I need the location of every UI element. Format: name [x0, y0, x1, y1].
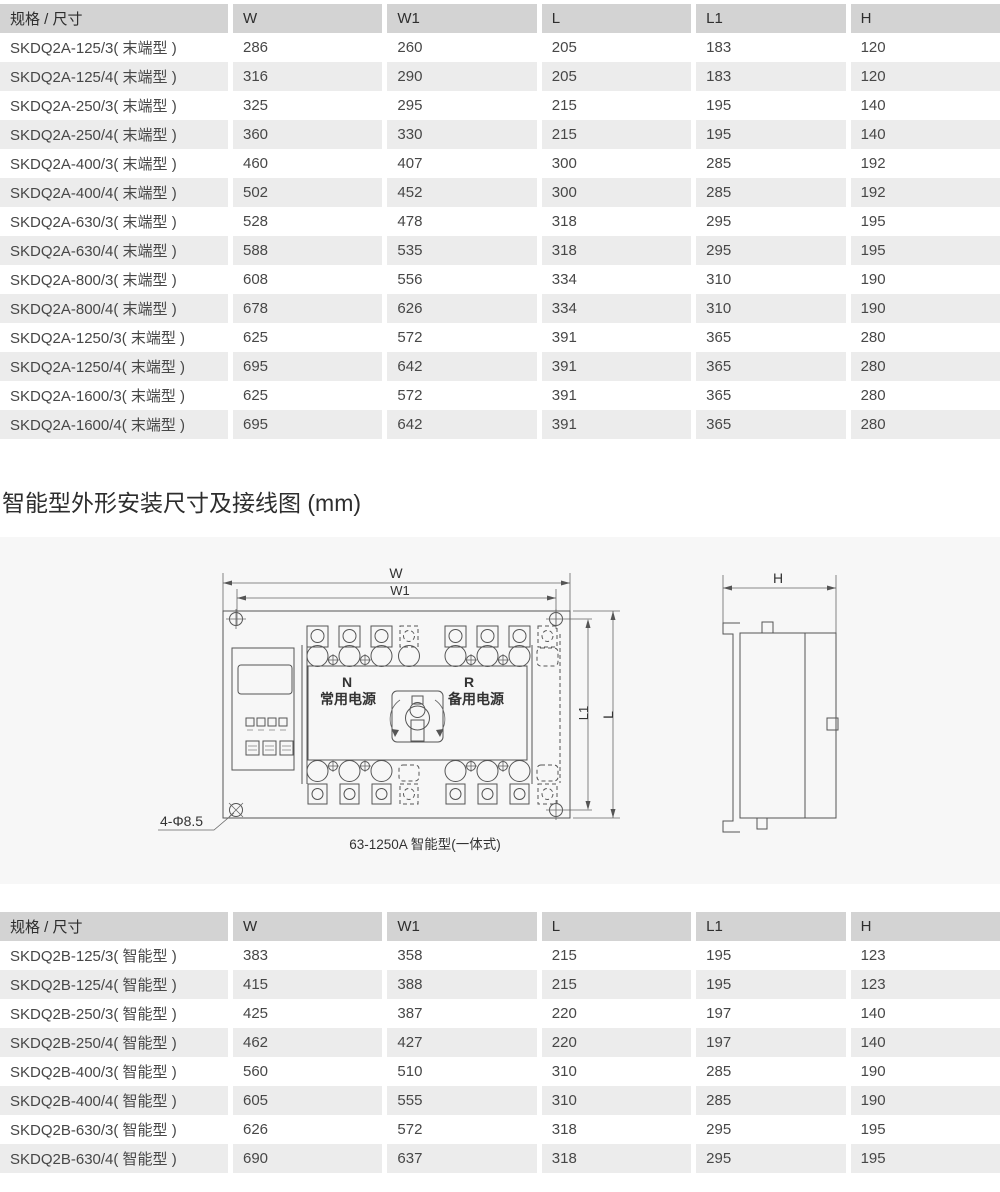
value-cell: 183	[691, 62, 845, 91]
value-cell: 192	[846, 178, 1000, 207]
value-cell: 608	[228, 265, 382, 294]
dimension-drawing: W W1	[0, 537, 1000, 884]
value-cell: 285	[691, 1086, 845, 1115]
table-row: SKDQ2A-250/3( 末端型 )325295215195140	[0, 91, 1000, 120]
label-r: R	[464, 674, 474, 690]
value-cell: 197	[691, 1028, 845, 1057]
table-row: SKDQ2A-1600/4( 末端型 )695642391365280	[0, 410, 1000, 439]
value-cell: 120	[846, 33, 1000, 62]
value-cell: 391	[537, 352, 691, 381]
value-cell: 407	[382, 149, 536, 178]
spec-cell: SKDQ2A-250/3( 末端型 )	[0, 91, 228, 120]
spec-cell: SKDQ2B-125/3( 智能型 )	[0, 941, 228, 970]
dim-label-l: L	[600, 711, 616, 719]
table-row: SKDQ2A-400/3( 末端型 )460407300285192	[0, 149, 1000, 178]
spec-cell: SKDQ2A-400/3( 末端型 )	[0, 149, 228, 178]
dim-label-l1: L1	[576, 706, 591, 720]
spec-cell: SKDQ2A-250/4( 末端型 )	[0, 120, 228, 149]
value-cell: 295	[691, 1144, 845, 1173]
value-cell: 427	[382, 1028, 536, 1057]
value-cell: 310	[537, 1086, 691, 1115]
value-cell: 140	[846, 999, 1000, 1028]
value-cell: 295	[691, 1115, 845, 1144]
table-header-row: 规格 / 尺寸WW1LL1H	[0, 4, 1000, 33]
table-row: SKDQ2A-400/4( 末端型 )502452300285192	[0, 178, 1000, 207]
rotary-switch	[390, 691, 445, 742]
value-cell: 190	[846, 294, 1000, 323]
controller-display	[238, 665, 292, 694]
column-header-dim: L1	[691, 912, 845, 941]
value-cell: 318	[537, 236, 691, 265]
value-cell: 572	[382, 381, 536, 410]
value-cell: 391	[537, 410, 691, 439]
value-cell: 285	[691, 178, 845, 207]
value-cell: 215	[537, 941, 691, 970]
value-cell: 605	[228, 1086, 382, 1115]
value-cell: 195	[691, 91, 845, 120]
value-cell: 358	[382, 941, 536, 970]
column-header-dim: W1	[382, 4, 536, 33]
spec-cell: SKDQ2A-800/3( 末端型 )	[0, 265, 228, 294]
spec-cell: SKDQ2A-630/4( 末端型 )	[0, 236, 228, 265]
value-cell: 310	[537, 1057, 691, 1086]
dim-label-w: W	[389, 565, 403, 581]
value-cell: 260	[382, 33, 536, 62]
dimension-l1: L1	[576, 619, 591, 810]
datasheet-page: 规格 / 尺寸WW1LL1H SKDQ2A-125/3( 末端型 )286260…	[0, 4, 1000, 1173]
value-cell: 387	[382, 999, 536, 1028]
value-cell: 625	[228, 381, 382, 410]
label-n: N	[342, 674, 352, 690]
spec-cell: SKDQ2B-250/4( 智能型 )	[0, 1028, 228, 1057]
spec-cell: SKDQ2A-1250/3( 末端型 )	[0, 323, 228, 352]
value-cell: 120	[846, 62, 1000, 91]
table-skdq2a: 规格 / 尺寸WW1LL1H SKDQ2A-125/3( 末端型 )286260…	[0, 4, 1000, 439]
value-cell: 295	[691, 207, 845, 236]
side-bracket	[723, 623, 740, 832]
value-cell: 140	[846, 1028, 1000, 1057]
spec-cell: SKDQ2B-125/4( 智能型 )	[0, 970, 228, 999]
value-cell: 280	[846, 323, 1000, 352]
front-view: W W1	[158, 565, 620, 852]
value-cell: 478	[382, 207, 536, 236]
spec-cell: SKDQ2A-800/4( 末端型 )	[0, 294, 228, 323]
value-cell: 140	[846, 120, 1000, 149]
mounting-hole-bottom-left	[229, 803, 243, 817]
value-cell: 310	[691, 265, 845, 294]
spec-cell: SKDQ2A-125/4( 末端型 )	[0, 62, 228, 91]
mounting-hole-bottom-right	[546, 800, 592, 820]
side-top-tab	[762, 622, 773, 633]
value-cell: 556	[382, 265, 536, 294]
value-cell: 391	[537, 323, 691, 352]
spec-cell: SKDQ2B-630/4( 智能型 )	[0, 1144, 228, 1173]
spec-cell: SKDQ2A-630/3( 末端型 )	[0, 207, 228, 236]
value-cell: 123	[846, 941, 1000, 970]
value-cell: 502	[228, 178, 382, 207]
value-cell: 625	[228, 323, 382, 352]
dimension-w1: W1	[237, 583, 556, 625]
value-cell: 462	[228, 1028, 382, 1057]
value-cell: 365	[691, 410, 845, 439]
value-cell: 460	[228, 149, 382, 178]
table-row: SKDQ2A-1600/3( 末端型 )625572391365280	[0, 381, 1000, 410]
table-row: SKDQ2B-400/3( 智能型 )560510310285190	[0, 1057, 1000, 1086]
value-cell: 140	[846, 91, 1000, 120]
value-cell: 535	[382, 236, 536, 265]
value-cell: 334	[537, 294, 691, 323]
value-cell: 318	[537, 207, 691, 236]
value-cell: 215	[537, 91, 691, 120]
value-cell: 290	[382, 62, 536, 91]
spec-cell: SKDQ2A-125/3( 末端型 )	[0, 33, 228, 62]
value-cell: 365	[691, 381, 845, 410]
value-cell: 642	[382, 352, 536, 381]
value-cell: 195	[846, 1144, 1000, 1173]
value-cell: 295	[382, 91, 536, 120]
value-cell: 637	[382, 1144, 536, 1173]
column-header-dim: L	[537, 4, 691, 33]
hole-callout-label: 4-Φ8.5	[160, 813, 203, 829]
label-n-source: 常用电源	[320, 691, 376, 707]
value-cell: 285	[691, 149, 845, 178]
table-row: SKDQ2A-630/4( 末端型 )588535318295195	[0, 236, 1000, 265]
value-cell: 642	[382, 410, 536, 439]
side-view: H	[723, 570, 838, 832]
value-cell: 190	[846, 1086, 1000, 1115]
column-header-dim: H	[846, 4, 1000, 33]
table-row: SKDQ2A-250/4( 末端型 )360330215195140	[0, 120, 1000, 149]
value-cell: 183	[691, 33, 845, 62]
table-row: SKDQ2B-250/3( 智能型 )425387220197140	[0, 999, 1000, 1028]
value-cell: 195	[846, 236, 1000, 265]
value-cell: 695	[228, 410, 382, 439]
table-row: SKDQ2A-800/3( 末端型 )608556334310190	[0, 265, 1000, 294]
spec-cell: SKDQ2A-1600/3( 末端型 )	[0, 381, 228, 410]
value-cell: 678	[228, 294, 382, 323]
column-header-spec: 规格 / 尺寸	[0, 4, 228, 33]
value-cell: 286	[228, 33, 382, 62]
table-row: SKDQ2B-250/4( 智能型 )462427220197140	[0, 1028, 1000, 1057]
value-cell: 572	[382, 323, 536, 352]
column-header-dim: W	[228, 4, 382, 33]
value-cell: 192	[846, 149, 1000, 178]
table-row: SKDQ2B-400/4( 智能型 )605555310285190	[0, 1086, 1000, 1115]
section-heading: 智能型外形安装尺寸及接线图 (mm)	[2, 489, 1000, 517]
table-row: SKDQ2A-800/4( 末端型 )678626334310190	[0, 294, 1000, 323]
table-row: SKDQ2A-125/3( 末端型 )286260205183120	[0, 33, 1000, 62]
controller-panel	[232, 648, 294, 770]
value-cell: 190	[846, 265, 1000, 294]
value-cell: 197	[691, 999, 845, 1028]
value-cell: 310	[691, 294, 845, 323]
table-row: SKDQ2B-630/4( 智能型 )690637318295195	[0, 1144, 1000, 1173]
value-cell: 383	[228, 941, 382, 970]
value-cell: 123	[846, 970, 1000, 999]
spec-cell: SKDQ2A-400/4( 末端型 )	[0, 178, 228, 207]
side-body	[740, 633, 836, 818]
value-cell: 690	[228, 1144, 382, 1173]
value-cell: 425	[228, 999, 382, 1028]
spec-cell: SKDQ2B-630/3( 智能型 )	[0, 1115, 228, 1144]
table-row: SKDQ2B-630/3( 智能型 )626572318295195	[0, 1115, 1000, 1144]
table-skdq2b: 规格 / 尺寸WW1LL1H SKDQ2B-125/3( 智能型 )383358…	[0, 912, 1000, 1173]
value-cell: 195	[691, 120, 845, 149]
value-cell: 560	[228, 1057, 382, 1086]
value-cell: 626	[228, 1115, 382, 1144]
column-header-spec: 规格 / 尺寸	[0, 912, 228, 941]
value-cell: 285	[691, 1057, 845, 1086]
dim-label-h: H	[773, 570, 783, 586]
value-cell: 195	[691, 970, 845, 999]
table-row: SKDQ2A-125/4( 末端型 )316290205183120	[0, 62, 1000, 91]
value-cell: 300	[537, 149, 691, 178]
table-header-row: 规格 / 尺寸WW1LL1H	[0, 912, 1000, 941]
value-cell: 195	[691, 941, 845, 970]
table-row: SKDQ2A-1250/3( 末端型 )625572391365280	[0, 323, 1000, 352]
dimension-h: H	[723, 570, 836, 634]
spec-cell: SKDQ2A-1600/4( 末端型 )	[0, 410, 228, 439]
table-row: SKDQ2A-630/3( 末端型 )528478318295195	[0, 207, 1000, 236]
value-cell: 695	[228, 352, 382, 381]
mounting-hole-top-left	[226, 609, 246, 629]
value-cell: 316	[228, 62, 382, 91]
value-cell: 318	[537, 1144, 691, 1173]
value-cell: 280	[846, 410, 1000, 439]
value-cell: 195	[846, 1115, 1000, 1144]
column-header-dim: H	[846, 912, 1000, 941]
value-cell: 626	[382, 294, 536, 323]
value-cell: 195	[846, 207, 1000, 236]
value-cell: 325	[228, 91, 382, 120]
spec-cell: SKDQ2B-250/3( 智能型 )	[0, 999, 228, 1028]
value-cell: 334	[537, 265, 691, 294]
value-cell: 365	[691, 323, 845, 352]
value-cell: 572	[382, 1115, 536, 1144]
value-cell: 415	[228, 970, 382, 999]
value-cell: 318	[537, 1115, 691, 1144]
dim-label-w1: W1	[390, 583, 410, 598]
value-cell: 215	[537, 970, 691, 999]
value-cell: 215	[537, 120, 691, 149]
table-row: SKDQ2B-125/3( 智能型 )383358215195123	[0, 941, 1000, 970]
value-cell: 365	[691, 352, 845, 381]
value-cell: 330	[382, 120, 536, 149]
value-cell: 555	[382, 1086, 536, 1115]
switch-body	[308, 666, 527, 760]
value-cell: 220	[537, 1028, 691, 1057]
spec-cell: SKDQ2B-400/4( 智能型 )	[0, 1086, 228, 1115]
value-cell: 205	[537, 33, 691, 62]
column-header-dim: W1	[382, 912, 536, 941]
value-cell: 205	[537, 62, 691, 91]
label-r-source: 备用电源	[447, 691, 504, 707]
value-cell: 280	[846, 352, 1000, 381]
value-cell: 300	[537, 178, 691, 207]
table-row: SKDQ2B-125/4( 智能型 )415388215195123	[0, 970, 1000, 999]
value-cell: 190	[846, 1057, 1000, 1086]
installation-diagram: W W1	[0, 537, 1000, 884]
value-cell: 452	[382, 178, 536, 207]
value-cell: 588	[228, 236, 382, 265]
value-cell: 391	[537, 381, 691, 410]
side-bottom-tab	[757, 818, 767, 829]
spec-cell: SKDQ2B-400/3( 智能型 )	[0, 1057, 228, 1086]
value-cell: 510	[382, 1057, 536, 1086]
value-cell: 280	[846, 381, 1000, 410]
value-cell: 528	[228, 207, 382, 236]
value-cell: 220	[537, 999, 691, 1028]
controller-buttons	[246, 718, 293, 755]
value-cell: 388	[382, 970, 536, 999]
value-cell: 360	[228, 120, 382, 149]
column-header-dim: L	[537, 912, 691, 941]
spec-cell: SKDQ2A-1250/4( 末端型 )	[0, 352, 228, 381]
value-cell: 295	[691, 236, 845, 265]
table-row: SKDQ2A-1250/4( 末端型 )695642391365280	[0, 352, 1000, 381]
column-header-dim: W	[228, 912, 382, 941]
column-header-dim: L1	[691, 4, 845, 33]
diagram-caption: 63-1250A 智能型(一体式)	[349, 837, 501, 852]
